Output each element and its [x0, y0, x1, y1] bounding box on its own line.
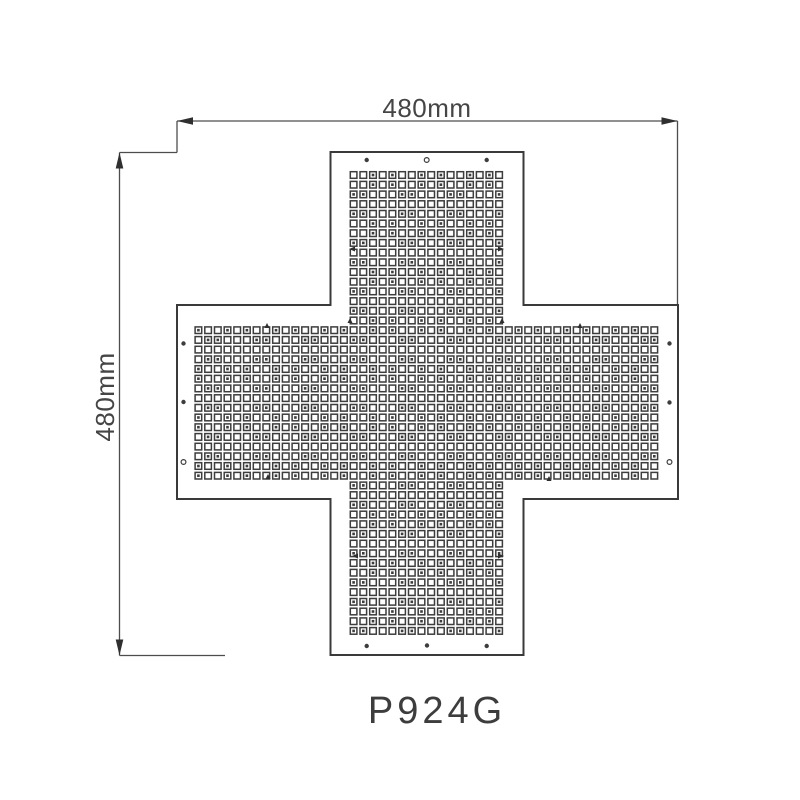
pharmacy-cross-drawing: 480mm 480mm P924G [0, 0, 800, 800]
height-arrow-bottom [116, 640, 124, 656]
mounting-holes [181, 158, 672, 649]
technical-drawing-page: 480mm 480mm P924G [0, 0, 800, 800]
model-label: P924G [368, 690, 506, 732]
width-arrow-left [177, 117, 193, 125]
dim-height-label: 480mm [90, 352, 120, 441]
dimension-annotations: 480mm 480mm [90, 93, 678, 656]
height-arrow-top [116, 153, 124, 169]
dim-width-label: 480mm [382, 93, 471, 123]
led-dot-grid [195, 172, 657, 634]
width-arrow-right [662, 117, 678, 125]
